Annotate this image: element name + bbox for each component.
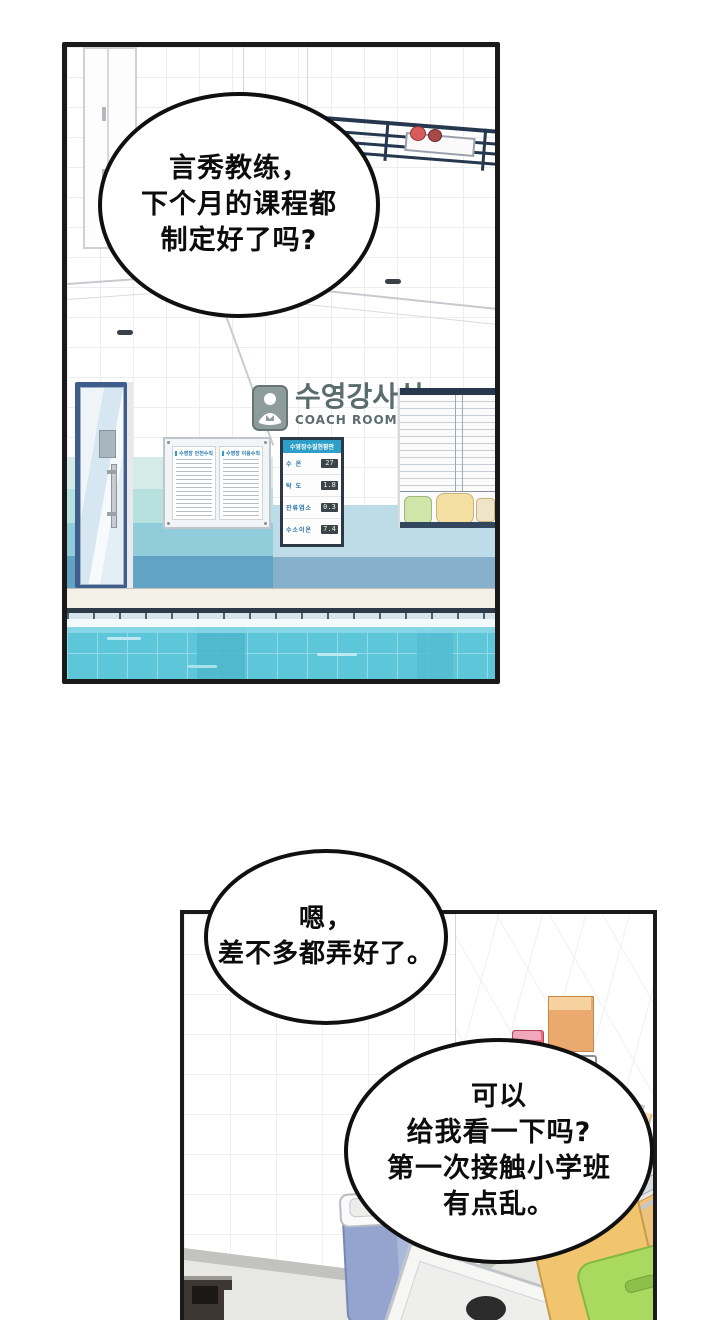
water-row-label: 잔류염소 [286, 503, 312, 512]
chair-through-window [436, 493, 474, 524]
blind-cord [462, 395, 463, 491]
board-hole [466, 1296, 506, 1320]
paper-title: 수영장 이용수칙 [226, 450, 260, 457]
door-handle-mount [107, 470, 117, 474]
speech-bubble-reply: 嗯， 差不多都弄好了。 [204, 849, 448, 1025]
window-top-rail [400, 388, 496, 395]
blind-cord [455, 395, 456, 491]
water-board-title: 수영장수질현황판 [283, 440, 341, 453]
water-quality-board: 수영장수질현황판 수 온 27 탁 도 1.8 잔류염소 0.3 수소이온 7.… [280, 437, 344, 547]
screw [167, 522, 170, 525]
bubble-line: 有点乱。 [443, 1187, 555, 1223]
water-row-value: 1.8 [321, 481, 338, 490]
door-jamb [127, 382, 133, 588]
bubble-line: 下个月的课程都 [141, 187, 337, 223]
door-handle-mount [107, 512, 117, 516]
water-sparkle [107, 637, 141, 640]
entrance-door [75, 382, 127, 588]
pool-water [67, 627, 495, 679]
door-glass [80, 387, 124, 585]
red-object [410, 126, 426, 141]
appliance-screen [192, 1286, 218, 1304]
window-sill [400, 522, 496, 528]
water-line-foam [67, 619, 495, 627]
coach-person-icon [252, 385, 288, 431]
water-row-value: 7.4 [321, 525, 338, 534]
pool-dark-tile [417, 631, 453, 679]
dark-appliance [184, 1276, 232, 1320]
box-top-face [549, 997, 591, 1010]
pool-dark-tile [197, 627, 245, 679]
water-row-label: 탁 도 [286, 481, 302, 490]
bubble-line: 可以 [471, 1079, 527, 1115]
wall-vent [385, 279, 401, 284]
chair-through-window [476, 498, 495, 522]
screw [167, 441, 170, 444]
water-highlight [67, 627, 495, 633]
screw [264, 522, 267, 525]
bubble-line: 第一次接触小学班 [387, 1151, 611, 1187]
paper-header-icon [175, 451, 177, 456]
speech-bubble-request: 可以 给我看一下吗? 第一次接触小学班 有点乱。 [344, 1038, 654, 1264]
notice-board: 수영장 안전수칙 수영장 이용수칙 [163, 437, 271, 529]
screw [264, 441, 267, 444]
office-window [398, 388, 498, 528]
paper-text-lines [223, 459, 259, 517]
door-handle [102, 107, 106, 121]
bubble-line: 言秀教练， [169, 151, 309, 187]
bubble-line: 制定好了吗? [161, 223, 318, 259]
blind-bottom-rail [400, 491, 496, 492]
bubble-line: 嗯， [299, 902, 353, 937]
paper-text-lines [176, 459, 212, 517]
wall-vent [117, 330, 133, 335]
notice-paper: 수영장 안전수칙 [172, 446, 216, 520]
bubble-line: 给我看一下吗? [407, 1115, 592, 1151]
water-row-label: 수소이온 [286, 525, 312, 534]
water-row-value: 0.3 [321, 503, 338, 512]
orange-box [548, 996, 594, 1052]
bubble-line: 差不多都弄好了。 [218, 937, 434, 972]
paper-title: 수영장 안전수칙 [179, 450, 213, 457]
speech-bubble-question: 言秀教练， 下个月的课程都 制定好了吗? [98, 92, 380, 318]
chair-handle-slot [624, 1273, 657, 1294]
water-sparkle [317, 653, 357, 656]
notice-paper: 수영장 이용수칙 [219, 446, 263, 520]
appliance-side [224, 1290, 234, 1320]
door-sign [99, 430, 116, 458]
pool-deck [67, 588, 495, 609]
comic-page: 수영장 안전수칙 수영장 이용수칙 수영강사실 C [0, 0, 720, 1320]
red-object [428, 129, 442, 142]
chair-through-window [404, 496, 432, 524]
water-sparkle [187, 665, 217, 668]
water-row-value: 27 [321, 459, 338, 468]
water-row-label: 수 온 [286, 459, 302, 468]
window-blinds [400, 395, 496, 491]
wall-seam [307, 47, 308, 111]
paper-header-icon [222, 451, 224, 456]
